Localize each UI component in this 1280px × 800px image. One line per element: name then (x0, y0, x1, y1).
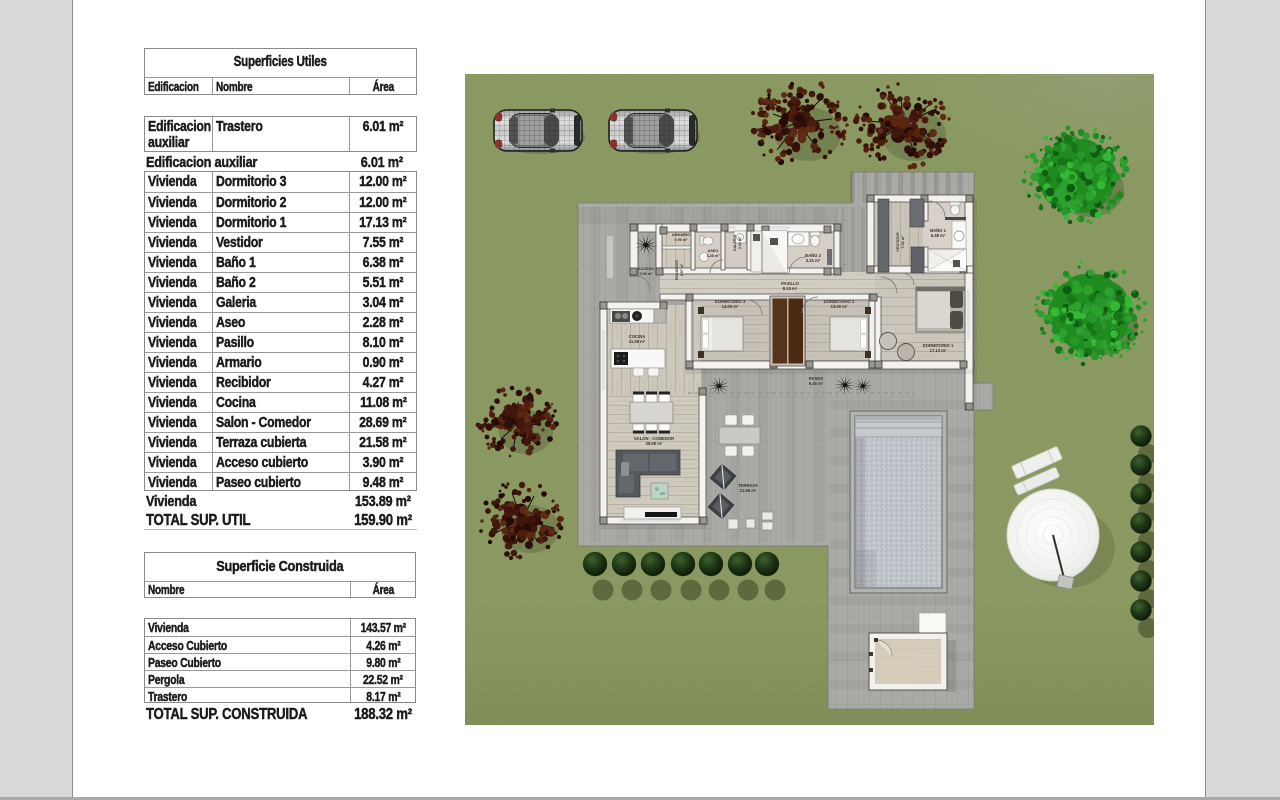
svg-text:13.00 m²: 13.00 m² (722, 304, 739, 309)
svg-text:0.90 m²: 0.90 m² (674, 238, 688, 242)
svg-text:3.90 m²: 3.90 m² (639, 272, 653, 276)
svg-text:28.69 m²: 28.69 m² (646, 441, 663, 446)
svg-text:RECIBIDOR: RECIBIDOR (675, 260, 679, 281)
svg-text:17.13 m²: 17.13 m² (930, 348, 947, 353)
svg-text:3.04 m²: 3.04 m² (738, 236, 742, 249)
svg-text:ASEO: ASEO (708, 249, 719, 253)
svg-text:ARMARIO: ARMARIO (672, 233, 690, 237)
svg-text:13.00 m²: 13.00 m² (831, 304, 848, 309)
svg-text:9.46 m²: 9.46 m² (809, 381, 824, 386)
svg-text:3.28 m²: 3.28 m² (706, 254, 720, 258)
svg-text:GALERIA: GALERIA (733, 235, 737, 252)
svg-text:3.31 m²: 3.31 m² (806, 258, 821, 263)
svg-text:21.58 m²: 21.58 m² (740, 488, 757, 493)
svg-text:ACCESO: ACCESO (638, 267, 654, 271)
svg-text:4.57 m²: 4.57 m² (680, 263, 684, 276)
svg-text:8.10 m²: 8.10 m² (783, 286, 798, 291)
svg-text:7.51 m²: 7.51 m² (901, 235, 905, 249)
svg-text:11.08 m²: 11.08 m² (629, 339, 646, 344)
svg-text:6.38 m²: 6.38 m² (931, 233, 946, 238)
svg-text:VESTIDOR: VESTIDOR (896, 232, 900, 252)
